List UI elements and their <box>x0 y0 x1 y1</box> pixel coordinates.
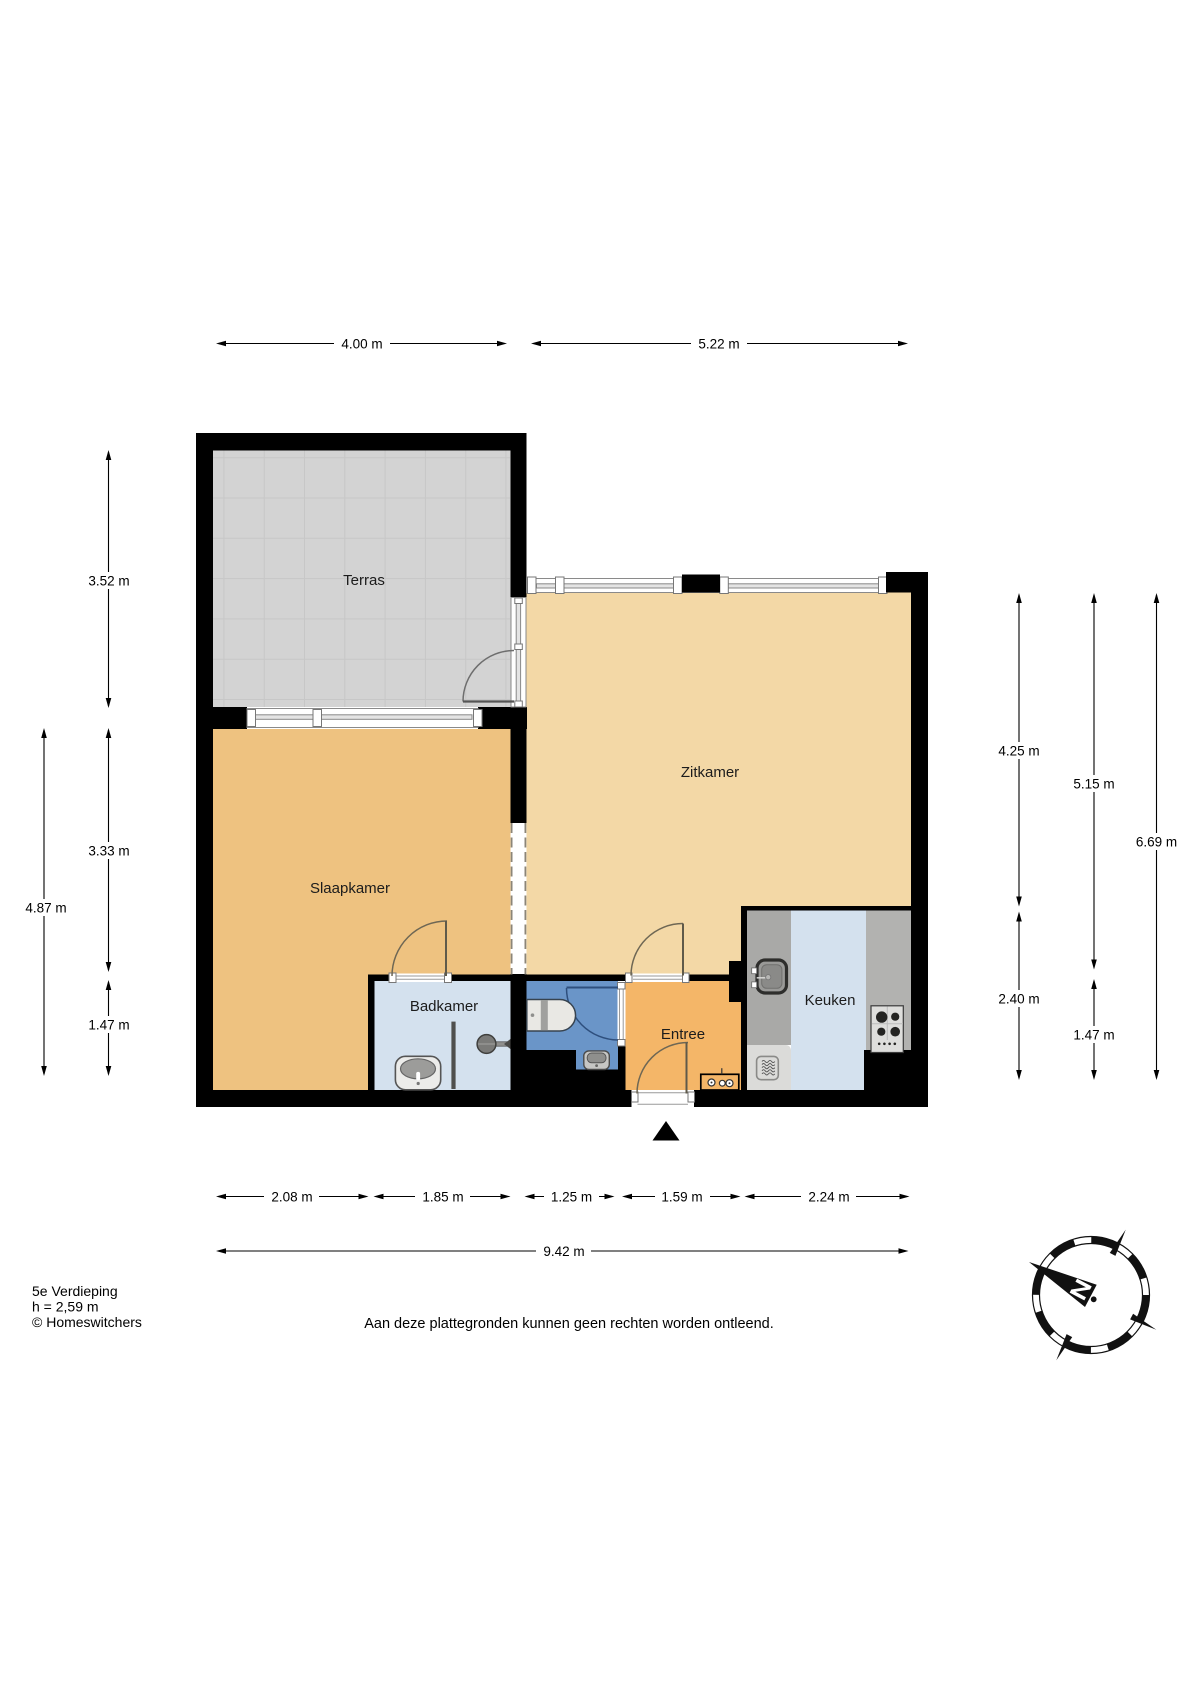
svg-text:Zitkamer: Zitkamer <box>681 764 739 781</box>
svg-text:1.25 m: 1.25 m <box>551 1190 592 1205</box>
svg-text:Entree: Entree <box>661 1026 705 1043</box>
svg-text:1.59 m: 1.59 m <box>661 1190 702 1205</box>
svg-text:2.40 m: 2.40 m <box>998 992 1039 1007</box>
svg-text:2.08 m: 2.08 m <box>271 1190 312 1205</box>
svg-text:2.24 m: 2.24 m <box>808 1190 849 1205</box>
svg-text:1.47 m: 1.47 m <box>88 1018 129 1033</box>
svg-text:1.85 m: 1.85 m <box>422 1190 463 1205</box>
svg-text:5.15 m: 5.15 m <box>1073 777 1114 792</box>
svg-text:3.52 m: 3.52 m <box>88 574 129 589</box>
svg-text:1.47 m: 1.47 m <box>1073 1028 1114 1043</box>
svg-text:4.87 m: 4.87 m <box>25 901 66 916</box>
svg-text:Badkamer: Badkamer <box>410 998 478 1015</box>
svg-text:Keuken: Keuken <box>805 992 856 1009</box>
svg-text:Aan deze plattegronden kunnen: Aan deze plattegronden kunnen geen recht… <box>364 1316 774 1332</box>
svg-text:© Homeswitchers: © Homeswitchers <box>32 1314 142 1330</box>
svg-text:6.69 m: 6.69 m <box>1136 835 1177 850</box>
svg-text:Terras: Terras <box>343 572 385 589</box>
svg-text:Slaapkamer: Slaapkamer <box>310 880 390 897</box>
svg-text:9.42 m: 9.42 m <box>543 1244 584 1259</box>
svg-text:3.33 m: 3.33 m <box>88 844 129 859</box>
svg-text:4.25 m: 4.25 m <box>998 744 1039 759</box>
svg-text:h = 2,59 m: h = 2,59 m <box>32 1299 99 1315</box>
svg-text:5e Verdieping: 5e Verdieping <box>32 1283 118 1299</box>
svg-text:5.22 m: 5.22 m <box>698 337 739 352</box>
svg-text:4.00 m: 4.00 m <box>341 337 382 352</box>
